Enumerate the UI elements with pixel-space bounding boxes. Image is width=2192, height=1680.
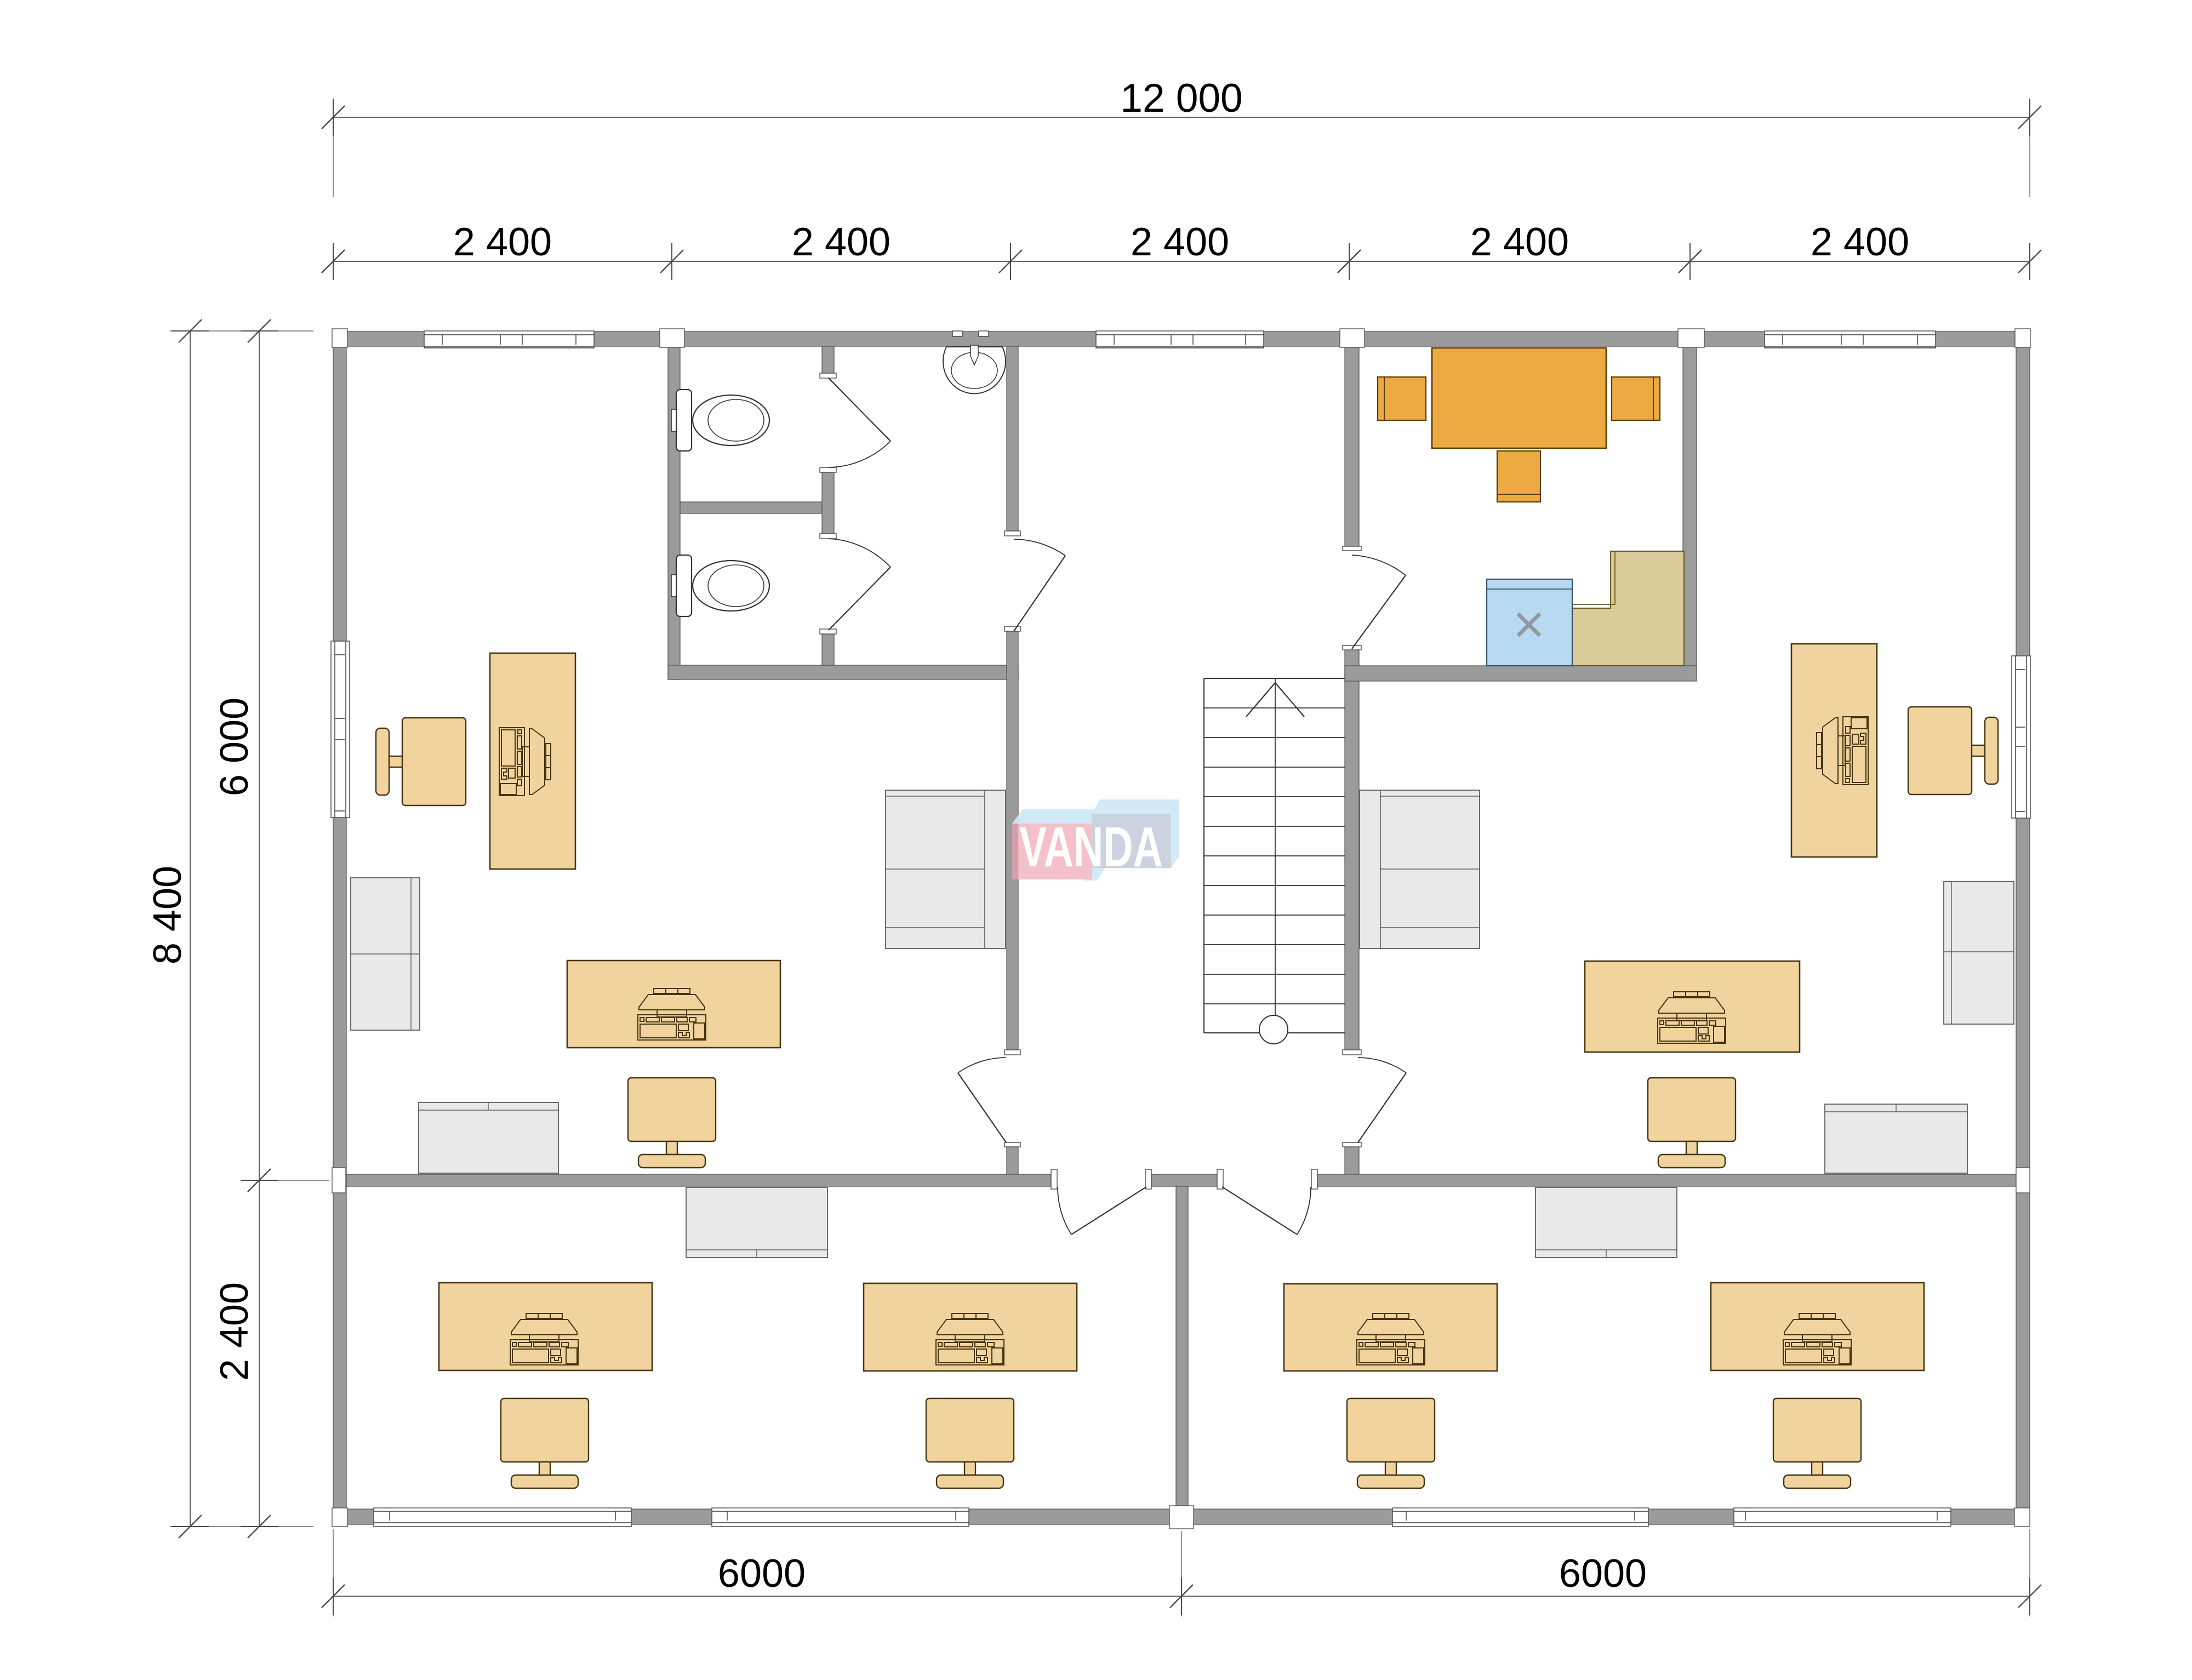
- svg-text:8 400: 8 400: [146, 866, 190, 964]
- svg-text:VANDA: VANDA: [1019, 815, 1163, 878]
- svg-text:2 400: 2 400: [1811, 220, 1909, 264]
- svg-text:6000: 6000: [1559, 1552, 1647, 1596]
- svg-text:2 400: 2 400: [792, 220, 891, 264]
- svg-text:12 000: 12 000: [1120, 76, 1242, 121]
- svg-text:6000: 6000: [718, 1552, 806, 1596]
- svg-text:2 400: 2 400: [1131, 220, 1229, 264]
- svg-text:2 400: 2 400: [213, 1282, 256, 1381]
- svg-text:2 400: 2 400: [453, 220, 552, 264]
- svg-text:6 000: 6 000: [213, 698, 256, 796]
- svg-text:2 400: 2 400: [1470, 220, 1569, 264]
